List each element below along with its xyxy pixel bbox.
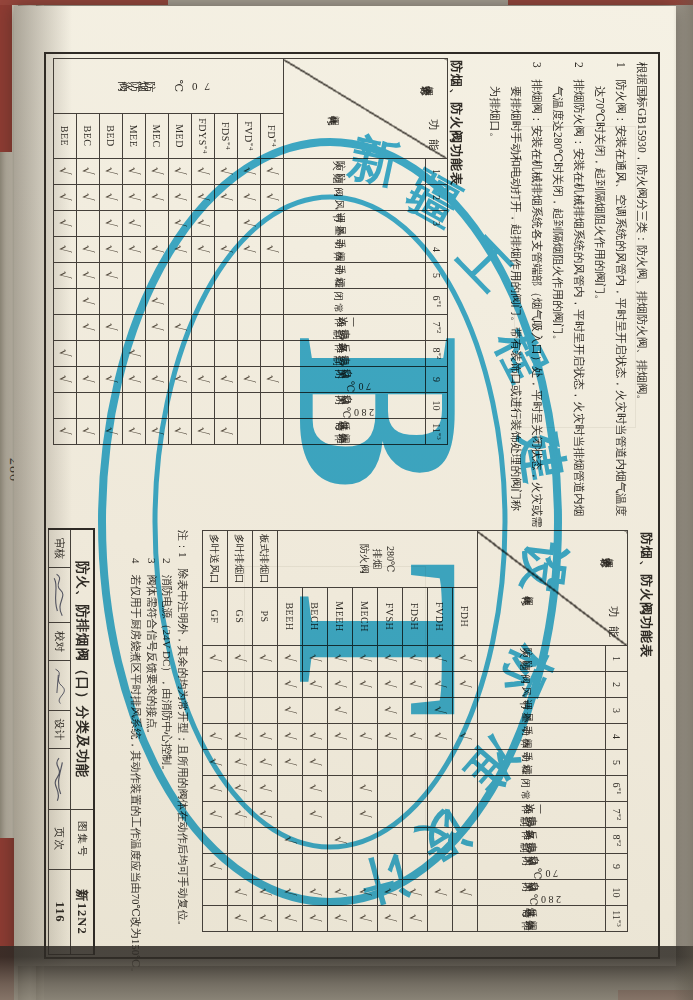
approval-stamp: 新 疆 工 程 建 设 标 准 设 计 BT <box>14 6 676 966</box>
stamp-char: 建 <box>509 426 573 488</box>
scanned-book-photo: 286 根据国标GB15930，防火阀分三类：防火阀、排烟防火阀、排烟阀。 1 … <box>0 0 693 1000</box>
stamp-char: 设 <box>513 538 575 595</box>
stamp-char: 新 <box>343 129 405 194</box>
scan-right-shadow <box>673 0 693 1000</box>
book-cover-edge <box>508 0 693 5</box>
book-cover-edge <box>0 0 168 5</box>
book-cover-edge <box>0 0 12 152</box>
stamp-char: 疆 <box>398 162 470 236</box>
stamp-char: 设 <box>408 798 481 873</box>
atlas-page: 根据国标GB15930，防火阀分三类：防火阀、排烟防火阀、排烟阀。 1 防火阀：… <box>14 6 676 966</box>
stamp-bt-letters: BT <box>249 334 509 788</box>
scan-bottom-shadow <box>0 946 693 1000</box>
